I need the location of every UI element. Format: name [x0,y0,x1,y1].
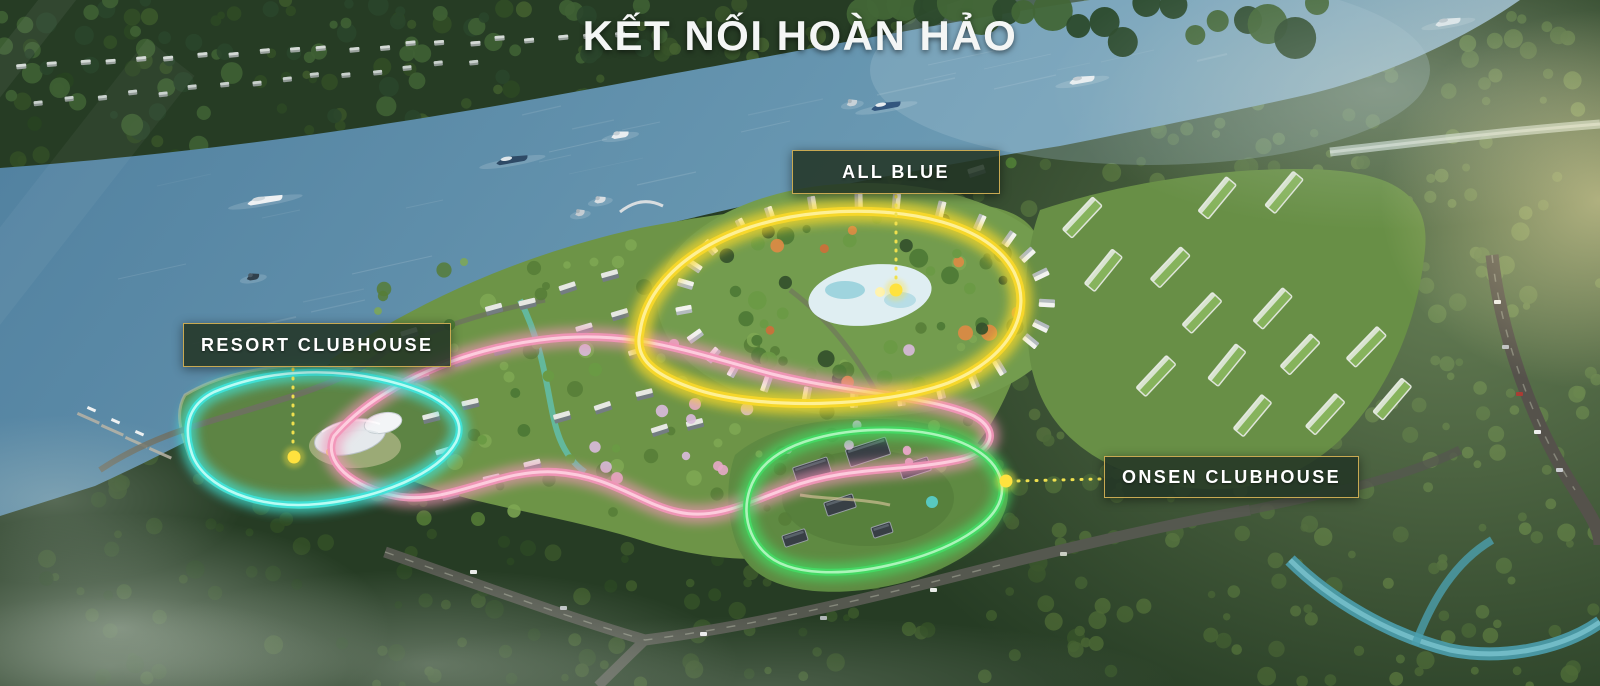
callout-resort-clubhouse: RESORT CLUBHOUSE [183,323,451,367]
callout-all-blue-text: ALL BLUE [842,162,950,183]
callout-all-blue: ALL BLUE [792,150,1000,194]
all-blue-marker-dot [890,284,903,297]
callout-resort-clubhouse-text: RESORT CLUBHOUSE [201,335,433,356]
resort-marker-dot [288,451,301,464]
masterplan-image: KẾT NỐI HOÀN HẢO ALL BLUE RESORT CLUBHOU… [0,0,1600,686]
page-title: KẾT NỐI HOÀN HẢO [0,12,1600,60]
callout-onsen-clubhouse-text: ONSEN CLUBHOUSE [1122,467,1341,488]
callout-onsen-clubhouse: ONSEN CLUBHOUSE [1104,456,1359,498]
onsen-marker-dot [1000,475,1013,488]
